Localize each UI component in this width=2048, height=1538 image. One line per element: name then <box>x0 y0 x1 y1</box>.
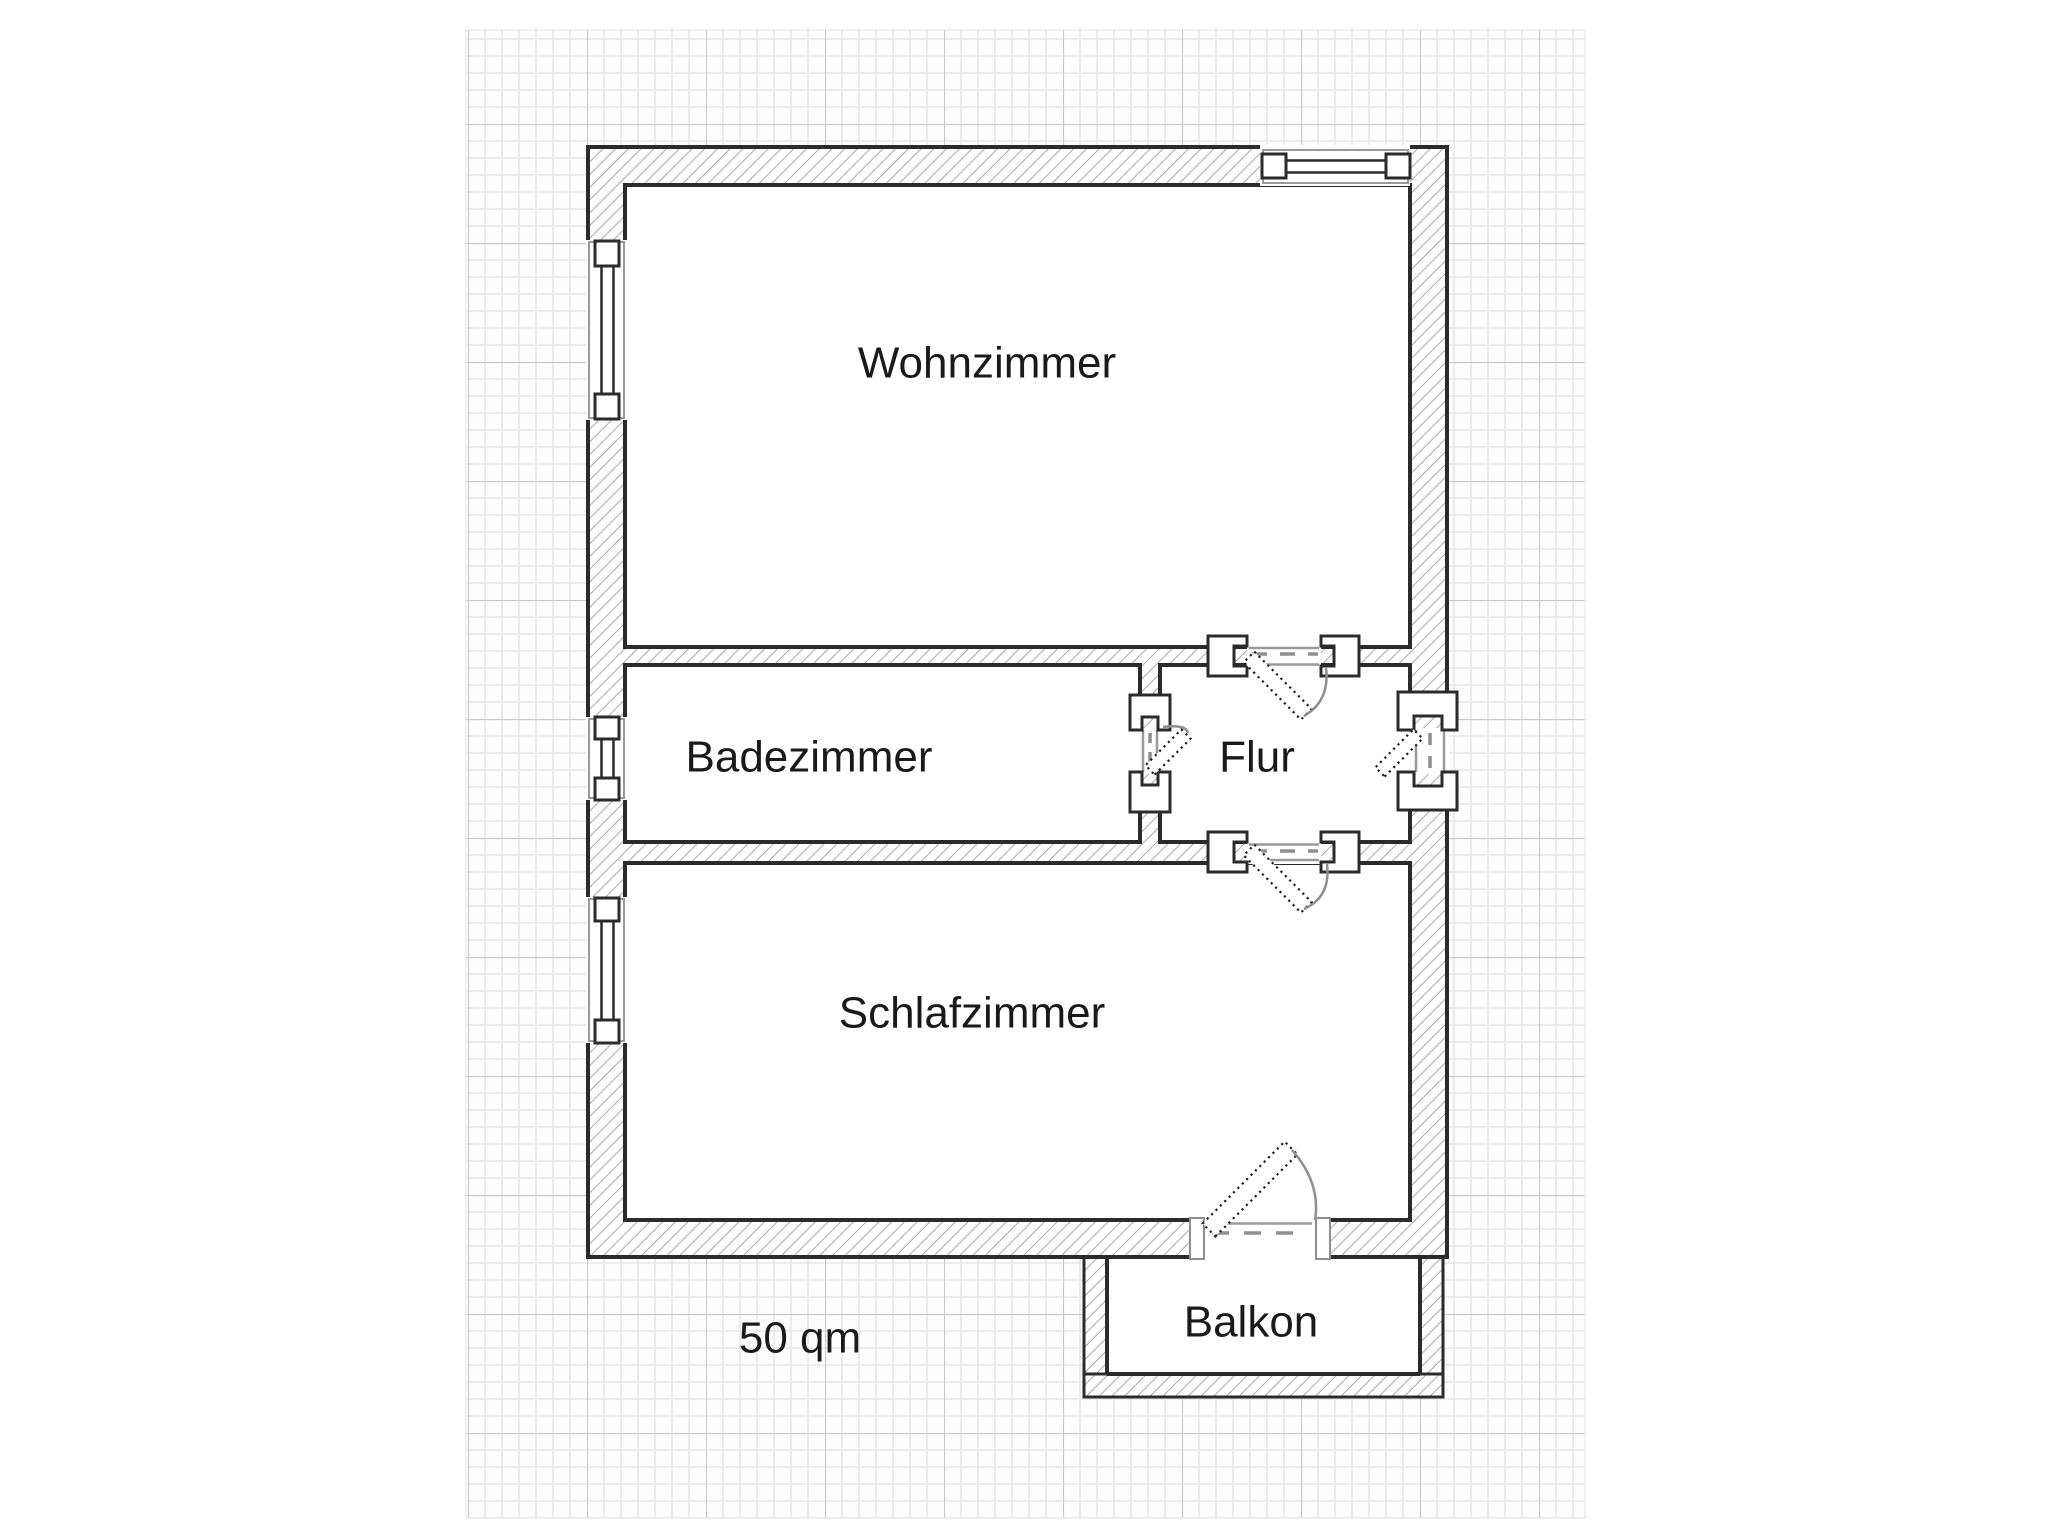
window-left-wohnzimmer <box>586 240 627 420</box>
room-wohnzimmer <box>625 185 1410 647</box>
floor-plan-page: Wohnzimmer Badezimmer Flur Schlafzimmer … <box>0 0 2048 1538</box>
label-balkon: Balkon <box>1184 1298 1319 1347</box>
door-jamb <box>1316 1218 1330 1259</box>
label-wohnzimmer: Wohnzimmer <box>858 339 1116 388</box>
balkon-wall-bottom <box>1084 1374 1443 1397</box>
label-flur: Flur <box>1219 733 1295 782</box>
floor-plan-svg: Wohnzimmer Badezimmer Flur Schlafzimmer … <box>0 0 2048 1538</box>
window-left-schlafzimmer <box>586 897 627 1043</box>
label-schlafzimmer: Schlafzimmer <box>839 989 1106 1038</box>
window-top-wohnzimmer <box>1260 145 1410 186</box>
window-left-badezimmer <box>586 717 627 800</box>
label-total-area: 50 qm <box>739 1314 861 1363</box>
room-schlafzimmer <box>625 863 1410 1220</box>
label-badezimmer: Badezimmer <box>686 733 933 782</box>
